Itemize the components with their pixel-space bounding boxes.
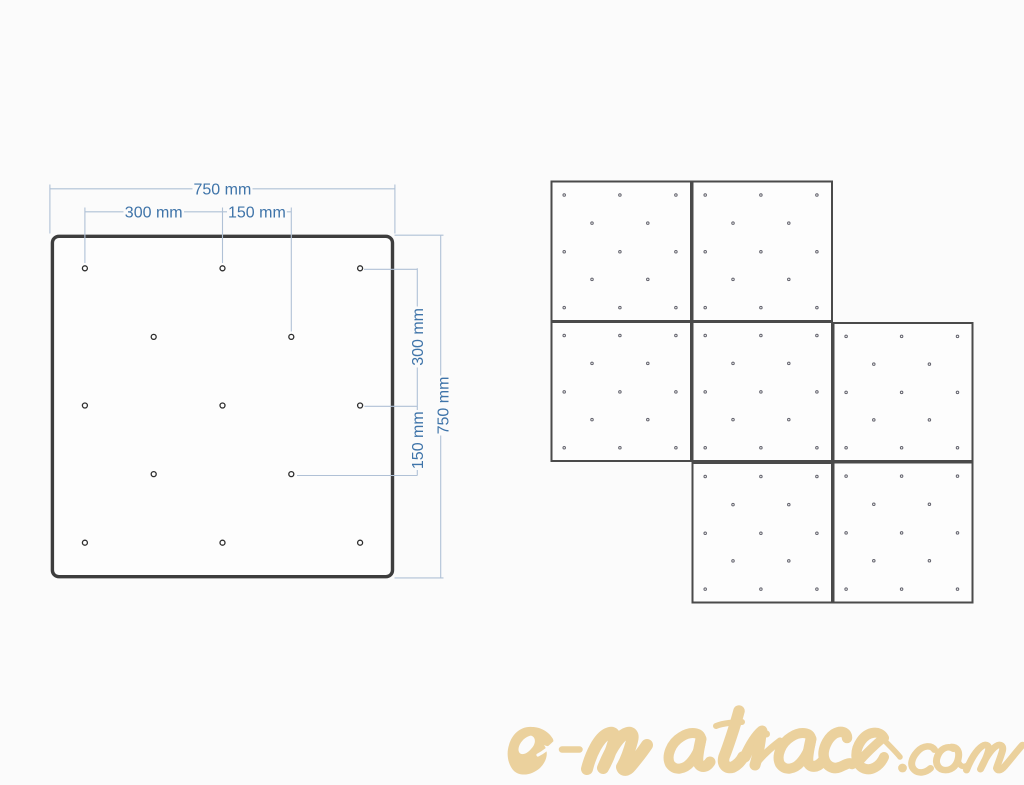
svg-text:750 mm: 750 mm xyxy=(194,182,252,199)
svg-text:300 mm: 300 mm xyxy=(410,308,427,366)
svg-text:150 mm: 150 mm xyxy=(228,205,286,222)
svg-text:150 mm: 150 mm xyxy=(410,411,427,469)
svg-text:300 mm: 300 mm xyxy=(125,205,183,222)
svg-text:750 mm: 750 mm xyxy=(435,377,452,435)
